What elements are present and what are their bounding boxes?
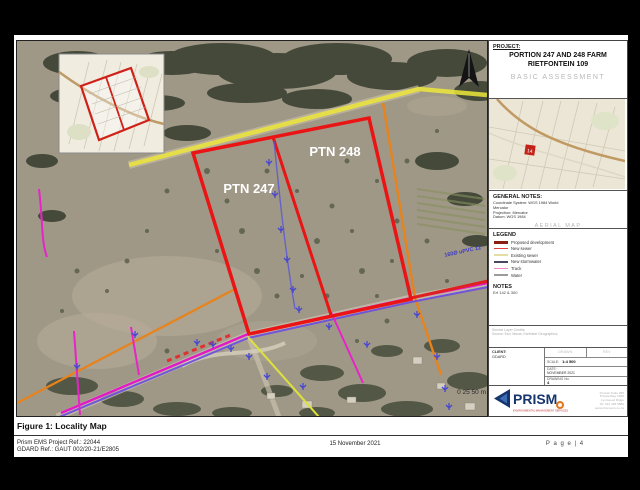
title-block-panel: PROJECT: PORTION 247 AND 248 FARM RIETFO… bbox=[488, 40, 628, 417]
project-ref: Prism EMS Project Ref.: 22044 bbox=[17, 440, 100, 446]
legend-label: Proposed development bbox=[511, 240, 554, 245]
scale-label: SCALE: bbox=[547, 360, 559, 364]
project-title: PORTION 247 AND 248 FARM RIETFONTEIN 109 bbox=[489, 52, 627, 69]
prism-logo: PRISM ENVIRONMENTAL MANAGEMENT SERVICES bbox=[492, 387, 570, 415]
client-cell: CLIENT: GDARD bbox=[489, 348, 545, 385]
drawn-rev-row: DRAWN REV bbox=[545, 348, 627, 358]
legend-heading: LEGEND bbox=[493, 232, 627, 238]
legend-item: New sewer bbox=[494, 246, 627, 251]
project-heading: PROJECT: bbox=[493, 44, 627, 50]
svg-text:14: 14 bbox=[527, 148, 534, 155]
legend-label: Track bbox=[511, 266, 521, 271]
legend-item: New stormwater bbox=[494, 259, 627, 264]
gdard-ref: GDARD Ref.: GAUT 002/20-21/E2805 bbox=[17, 447, 119, 453]
credits-section: Service Layer Credits: Source: Esri, Max… bbox=[489, 326, 627, 348]
scale-row: SCALE: 1:4 500 bbox=[545, 358, 627, 368]
ptn-248-label: PTN 248 bbox=[309, 144, 360, 159]
figure-caption: Figure 1: Locality Map bbox=[17, 421, 107, 431]
legend-label: New sewer bbox=[511, 246, 532, 251]
scale-value: 1:4 500 bbox=[562, 359, 576, 364]
drawn-cell: DRAWN bbox=[545, 348, 587, 357]
footer-divider bbox=[14, 435, 628, 436]
legend-swatch bbox=[494, 268, 508, 270]
footer-date: 15 November 2021 bbox=[300, 441, 410, 447]
report-page: PTN 247 PTN 248 160Ø uPVC 12 0 25 50 m bbox=[0, 0, 640, 490]
township-inset-map bbox=[59, 54, 164, 153]
aerial-map-canvas: PTN 247 PTN 248 160Ø uPVC 12 0 25 50 m bbox=[17, 41, 487, 416]
legend-swatch bbox=[494, 274, 508, 276]
locality-inset-section: 14 bbox=[489, 99, 627, 191]
project-section: PROJECT: PORTION 247 AND 248 FARM RIETFO… bbox=[489, 41, 627, 99]
legend-item: Track bbox=[494, 266, 627, 271]
legend-label: Existing sewer bbox=[511, 253, 538, 258]
credits-line: Source: Esri, Maxar, Earthstar Geographi… bbox=[492, 332, 627, 336]
prism-logo-text: PRISM bbox=[513, 391, 557, 407]
street-inset-map: 14 bbox=[489, 99, 625, 189]
contact-line: www.prismems.co.za bbox=[595, 407, 624, 411]
route-marker: 14 bbox=[524, 144, 535, 155]
notes-line: Erf 142 & 300 bbox=[493, 290, 627, 295]
legend-swatch bbox=[494, 241, 508, 244]
page-number: P a g e | 4 bbox=[515, 441, 615, 447]
legend-item: Water bbox=[494, 273, 627, 278]
datum-note: Datum: WGS 1984 bbox=[493, 215, 627, 220]
legend-label: Water bbox=[511, 273, 522, 278]
prism-logo-tagline: ENVIRONMENTAL MANAGEMENT SERVICES bbox=[513, 409, 568, 413]
legend-item: Existing sewer bbox=[494, 253, 627, 258]
legend-item: Proposed development bbox=[494, 240, 627, 245]
legend-swatch bbox=[494, 248, 508, 250]
general-notes-section: GENERAL NOTES: Coordinate System: WGS 19… bbox=[489, 191, 627, 229]
rev-cell: REV bbox=[587, 350, 628, 354]
drawing-info-section: CLIENT: GDARD DRAWN REV SCALE: 1:4 500 D… bbox=[489, 348, 627, 386]
date-row: DATE: NOVEMBER 2021 bbox=[545, 367, 627, 377]
legend-section: LEGEND Proposed development New sewer Ex… bbox=[489, 229, 627, 326]
client-value: GDARD bbox=[492, 355, 544, 360]
legend-label: New stormwater bbox=[511, 259, 541, 264]
ptn-247-label: PTN 247 bbox=[223, 181, 274, 196]
contact-block: Postnet Suite 205 Private Bag X025 Lynnw… bbox=[595, 392, 624, 411]
logo-section: PRISM ENVIRONMENTAL MANAGEMENT SERVICES … bbox=[489, 386, 627, 416]
drawing-no-value: 4 bbox=[547, 381, 569, 385]
legend-swatch bbox=[494, 254, 508, 256]
date-value: NOVEMBER 2021 bbox=[547, 371, 575, 375]
assessment-type: BASIC ASSESSMENT bbox=[489, 74, 627, 81]
locality-map: PTN 247 PTN 248 160Ø uPVC 12 0 25 50 m bbox=[16, 40, 488, 417]
scale-bar-text: 0 25 50 m bbox=[457, 389, 486, 396]
drawing-no-label: DRAWING No: bbox=[547, 377, 569, 381]
legend-swatch bbox=[494, 261, 508, 263]
drawing-no-row: DRAWING No: 4 bbox=[545, 377, 627, 386]
